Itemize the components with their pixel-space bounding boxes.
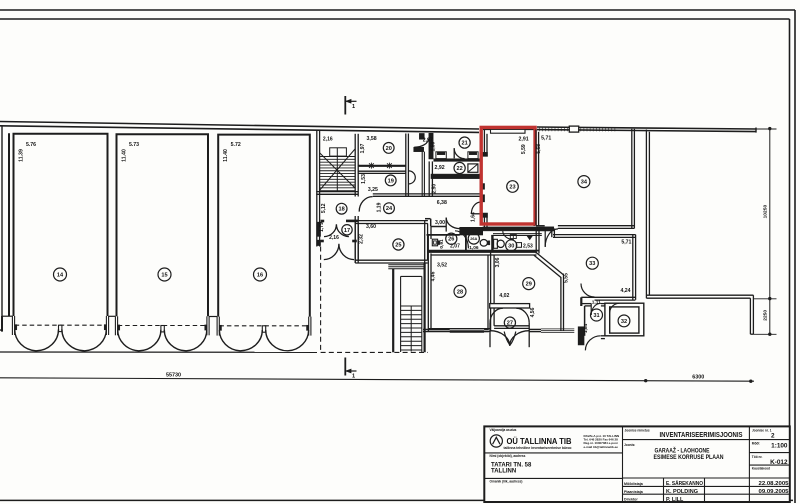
svg-text:32: 32 (621, 319, 627, 325)
svg-text:1,19: 1,19 (376, 202, 382, 212)
svg-text:22: 22 (456, 166, 462, 172)
svg-text:21: 21 (461, 141, 467, 147)
svg-text:E. SÄREKANNO: E. SÄREKANNO (666, 480, 703, 487)
svg-text:tallinna tehniline inventarise: tallinna tehniline inventariseerimise bü… (503, 446, 571, 450)
svg-text:5.76: 5.76 (26, 142, 36, 148)
svg-text:4,02: 4,02 (499, 293, 509, 299)
svg-text:4,56: 4,56 (530, 307, 536, 317)
svg-text:Joonise nimetus: Joonise nimetus (625, 429, 650, 433)
svg-text:Joonis:: Joonis: (624, 443, 635, 447)
svg-text:3,60: 3,60 (366, 224, 376, 230)
svg-text:e-mail tib@tallinnatib.ee: e-mail tib@tallinnatib.ee (584, 445, 619, 449)
svg-text:09.09.2005: 09.09.2005 (759, 489, 789, 495)
svg-text:11.40: 11.40 (121, 149, 127, 162)
svg-text:Omanik (liik, aadress): Omanik (liik, aadress) (490, 480, 523, 484)
svg-text:4,24: 4,24 (620, 288, 630, 294)
svg-text:2,32: 2,32 (359, 234, 365, 244)
svg-text:Väljaandja asutus: Väljaandja asutus (490, 428, 517, 432)
svg-text:2,53: 2,53 (523, 243, 533, 249)
svg-text:22.08.2005: 22.08.2005 (759, 481, 789, 487)
svg-text:1,84: 1,84 (583, 324, 589, 334)
svg-text:16: 16 (257, 273, 263, 279)
svg-text:2: 2 (771, 432, 775, 439)
svg-text:6,38: 6,38 (437, 200, 447, 206)
svg-text:17: 17 (344, 228, 350, 234)
svg-text:P. LILL: P. LILL (666, 497, 684, 503)
svg-text:0,91: 0,91 (439, 239, 445, 249)
svg-text:30: 30 (508, 243, 514, 249)
svg-text:5,55: 5,55 (564, 273, 570, 283)
svg-text:1,64: 1,64 (471, 212, 477, 222)
svg-text:1,50: 1,50 (431, 142, 437, 152)
svg-text:15: 15 (161, 273, 167, 279)
svg-text:2,16: 2,16 (329, 235, 339, 241)
svg-text:3,52: 3,52 (437, 263, 447, 269)
svg-text:Joonise nr. 1: Joonise nr. 1 (752, 429, 772, 433)
svg-text:2250: 2250 (763, 310, 769, 321)
svg-text:3,06: 3,06 (495, 257, 501, 267)
svg-text:28: 28 (457, 289, 463, 295)
svg-text:TATARI TN. 58: TATARI TN. 58 (491, 462, 532, 468)
svg-text:Töö nr.: Töö nr. (752, 455, 763, 459)
svg-text:1: 1 (352, 373, 355, 379)
svg-text:5,71: 5,71 (621, 239, 631, 245)
svg-text:33: 33 (589, 261, 595, 267)
svg-text:23: 23 (509, 185, 515, 191)
svg-text:1,97: 1,97 (360, 143, 366, 153)
svg-text:24: 24 (386, 206, 393, 212)
svg-text:34: 34 (581, 180, 588, 186)
svg-text:1: 1 (352, 104, 355, 110)
svg-text:11.39: 11.39 (18, 149, 24, 162)
svg-text:3,25: 3,25 (368, 187, 378, 193)
svg-text:TALLINN: TALLINN (491, 469, 516, 475)
svg-text:ESIMESE KORRUSE PLAAN: ESIMESE KORRUSE PLAAN (654, 455, 724, 461)
svg-text:2,07: 2,07 (450, 243, 460, 249)
svg-text:1,79: 1,79 (319, 222, 325, 232)
svg-text:10250: 10250 (763, 205, 769, 219)
svg-text:5,71: 5,71 (541, 136, 551, 142)
svg-text:29: 29 (526, 282, 532, 288)
svg-text:5,59: 5,59 (521, 144, 527, 154)
svg-text:3,00: 3,00 (435, 220, 445, 226)
svg-text:18: 18 (338, 207, 344, 213)
svg-text:5,12: 5,12 (321, 203, 327, 213)
svg-text:4,46: 4,46 (431, 271, 437, 281)
svg-text:2,91: 2,91 (519, 136, 529, 142)
svg-text:1,53: 1,53 (361, 174, 367, 184)
svg-text:27: 27 (507, 321, 513, 327)
svg-text:25: 25 (395, 243, 401, 249)
svg-text:5.73: 5.73 (129, 142, 139, 148)
svg-text:6300: 6300 (692, 374, 704, 380)
svg-text:5,68: 5,68 (536, 144, 542, 154)
svg-text:20: 20 (386, 146, 392, 152)
svg-text:11.40: 11.40 (223, 149, 229, 162)
svg-text:Direktor: Direktor (624, 498, 638, 502)
svg-text:26A: 26A (470, 236, 477, 241)
svg-text:1:100: 1:100 (771, 442, 788, 449)
svg-text:31: 31 (593, 313, 599, 319)
svg-text:K-012: K-012 (770, 459, 788, 466)
svg-text:Plaanistaja: Plaanistaja (624, 490, 644, 494)
svg-text:Kaustakood: Kaustakood (752, 467, 770, 471)
svg-text:19: 19 (388, 178, 394, 184)
svg-text:5.72: 5.72 (231, 142, 241, 148)
svg-text:K. POLDING: K. POLDING (666, 489, 698, 495)
svg-text:Nimi (objektid), aadress: Nimi (objektid), aadress (490, 454, 526, 458)
svg-text:55730: 55730 (166, 372, 181, 378)
svg-text:OÜ TALLINNA TIB: OÜ TALLINNA TIB (507, 436, 572, 446)
svg-text:GARAAŽ - LAOHOONE: GARAAŽ - LAOHOONE (655, 447, 710, 455)
svg-text:Mõõdistaja: Mõõdistaja (624, 482, 644, 486)
svg-text:14: 14 (57, 273, 64, 279)
svg-text:2,92: 2,92 (435, 165, 445, 171)
svg-text:Mõõt: Mõõt (752, 442, 761, 446)
svg-text:2,16: 2,16 (323, 137, 333, 143)
svg-text:3,58: 3,58 (367, 136, 377, 142)
svg-text:INVENTARISEERIMISJOONIS: INVENTARISEERIMISJOONIS (660, 432, 743, 439)
svg-text:26: 26 (448, 237, 454, 243)
